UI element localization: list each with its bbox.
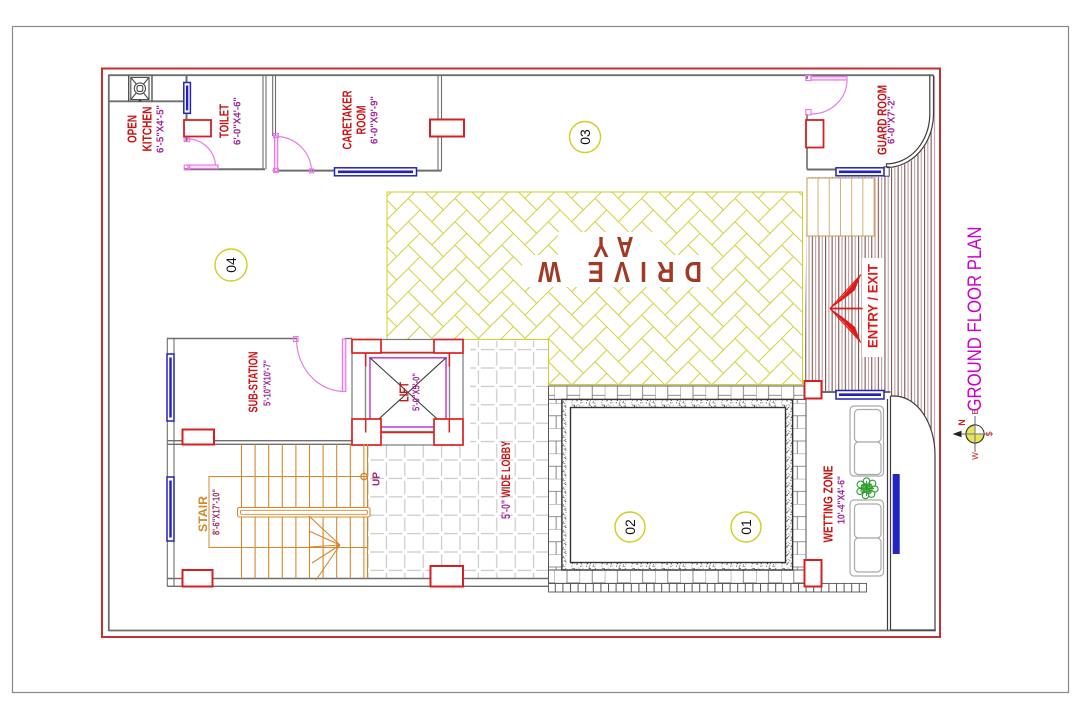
svg-text:6'-5"X4'-5": 6'-5"X4'-5": [156, 105, 167, 153]
svg-text:04: 04: [223, 257, 239, 273]
svg-text:6'-0"X4'-6": 6'-0"X4'-6": [233, 97, 244, 145]
svg-text:ROOM: ROOM: [354, 106, 369, 135]
svg-text:10'-4"X4'-6": 10'-4"X4'-6": [837, 476, 848, 524]
svg-text:UP: UP: [372, 472, 383, 486]
svg-text:STAIR: STAIR: [196, 496, 210, 532]
svg-text:E: E: [971, 409, 980, 414]
svg-text:TOILET: TOILET: [217, 104, 232, 138]
svg-text:GROUND FLOOR PLAN: GROUND FLOOR PLAN: [964, 227, 986, 412]
svg-text:N: N: [957, 419, 967, 426]
svg-text:KITCHEN: KITCHEN: [140, 107, 155, 152]
svg-text:CARETAKER: CARETAKER: [340, 91, 355, 150]
svg-text:5'-0"X5'-0": 5'-0"X5'-0": [412, 373, 423, 411]
svg-text:02: 02: [622, 519, 638, 535]
svg-text:ENTRY / EXIT: ENTRY / EXIT: [865, 264, 881, 348]
svg-text:6'-0"X7'-2": 6'-0"X7'-2": [887, 96, 898, 144]
svg-text:AY: AY: [584, 230, 634, 262]
svg-text:W: W: [971, 452, 980, 460]
svg-text:03: 03: [577, 129, 593, 145]
svg-text:WETTING ZONE: WETTING ZONE: [821, 465, 836, 542]
svg-text:5'-0" WIDE LOBBY: 5'-0" WIDE LOBBY: [501, 441, 513, 519]
svg-text:8'-6"X17'-10": 8'-6"X17'-10": [212, 489, 223, 535]
svg-text:6'-0"X9'-9": 6'-0"X9'-9": [370, 96, 381, 144]
svg-text:01: 01: [738, 519, 754, 535]
svg-text:SUB-STATION: SUB-STATION: [246, 352, 261, 413]
svg-text:OPEN: OPEN: [125, 115, 140, 143]
svg-text:LIFT: LIFT: [397, 382, 412, 402]
svg-text:5'-10"X10'-7": 5'-10"X10'-7": [263, 360, 274, 406]
svg-text:S: S: [985, 431, 994, 436]
